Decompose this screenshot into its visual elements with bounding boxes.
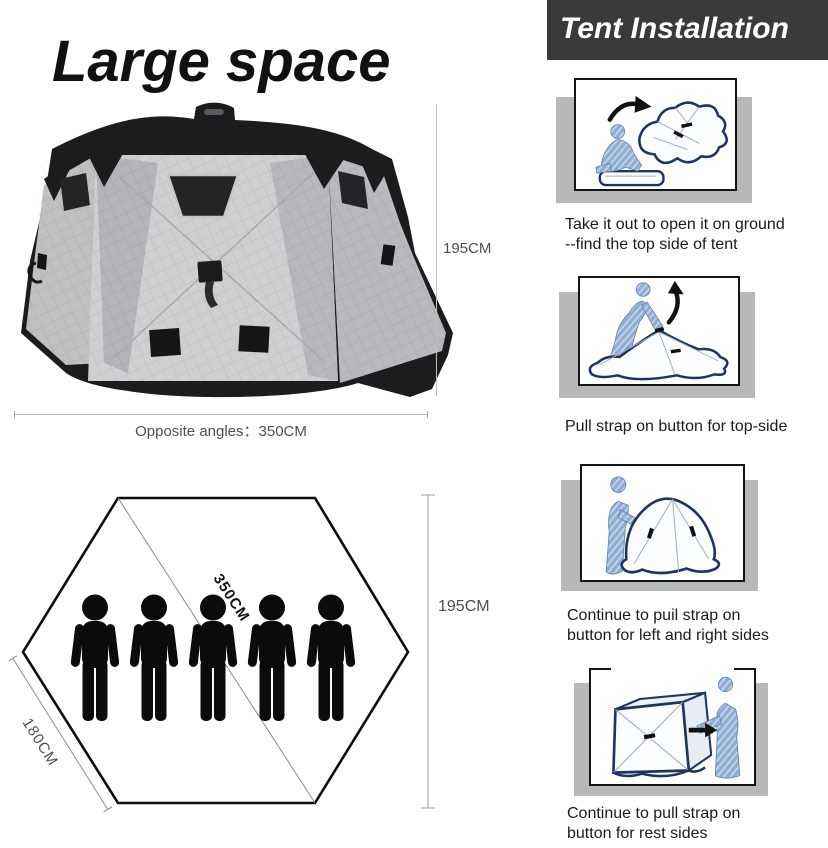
step1-image: [574, 78, 737, 191]
tent-illustration: [8, 93, 458, 407]
plan-height-measure: [421, 495, 435, 808]
step4-image: [589, 668, 756, 786]
step3-drawing: [582, 466, 743, 580]
kneeling-person-icon: [596, 125, 642, 174]
installation-header: Tent Installation: [547, 0, 828, 60]
measure-tick-left: [14, 411, 15, 418]
measure-tick-right: [427, 411, 428, 418]
tent-left-window: [60, 173, 90, 211]
tent-carry-handle: [204, 109, 224, 115]
step1-caption: Take it out to open it on ground --find …: [565, 215, 785, 255]
tent-bag-icon: [600, 171, 664, 185]
plan-height-label: 195CM: [438, 598, 490, 615]
side-label: 180CM: [19, 715, 62, 769]
flat-tent-icon: [590, 327, 727, 379]
pull-up-arrowhead-icon: [668, 281, 684, 294]
step4-caption: Continue to pull strap on button for res…: [567, 804, 740, 844]
tent-height-label: 195CM: [443, 240, 491, 257]
step1-drawing: [576, 80, 735, 189]
step4-drawing: [591, 670, 754, 784]
crumpled-tent-icon: [639, 103, 726, 163]
step2-caption: Pull strap on button for top-side: [565, 417, 787, 437]
tent-width-measure-line: [14, 414, 428, 415]
tent-panels: [26, 155, 446, 383]
cube-tent-icon: [613, 693, 711, 776]
product-infographic: Large space: [0, 0, 828, 848]
step3-caption: Continue to puil strap on button for lef…: [567, 606, 769, 646]
floor-plan: 350CM 180CM 195CM: [0, 478, 500, 828]
half-raised-tent-icon: [622, 499, 719, 573]
page-title: Large space: [52, 28, 391, 95]
pull-up-arrow-icon: [669, 291, 678, 322]
step2-image: [578, 276, 740, 386]
tent-height-measure-line: [436, 104, 437, 396]
unfold-arrowhead-icon: [635, 96, 652, 113]
tent-width-label: Opposite angles：350CM: [14, 420, 428, 441]
step2-drawing: [580, 278, 738, 384]
step3-image: [580, 464, 745, 582]
